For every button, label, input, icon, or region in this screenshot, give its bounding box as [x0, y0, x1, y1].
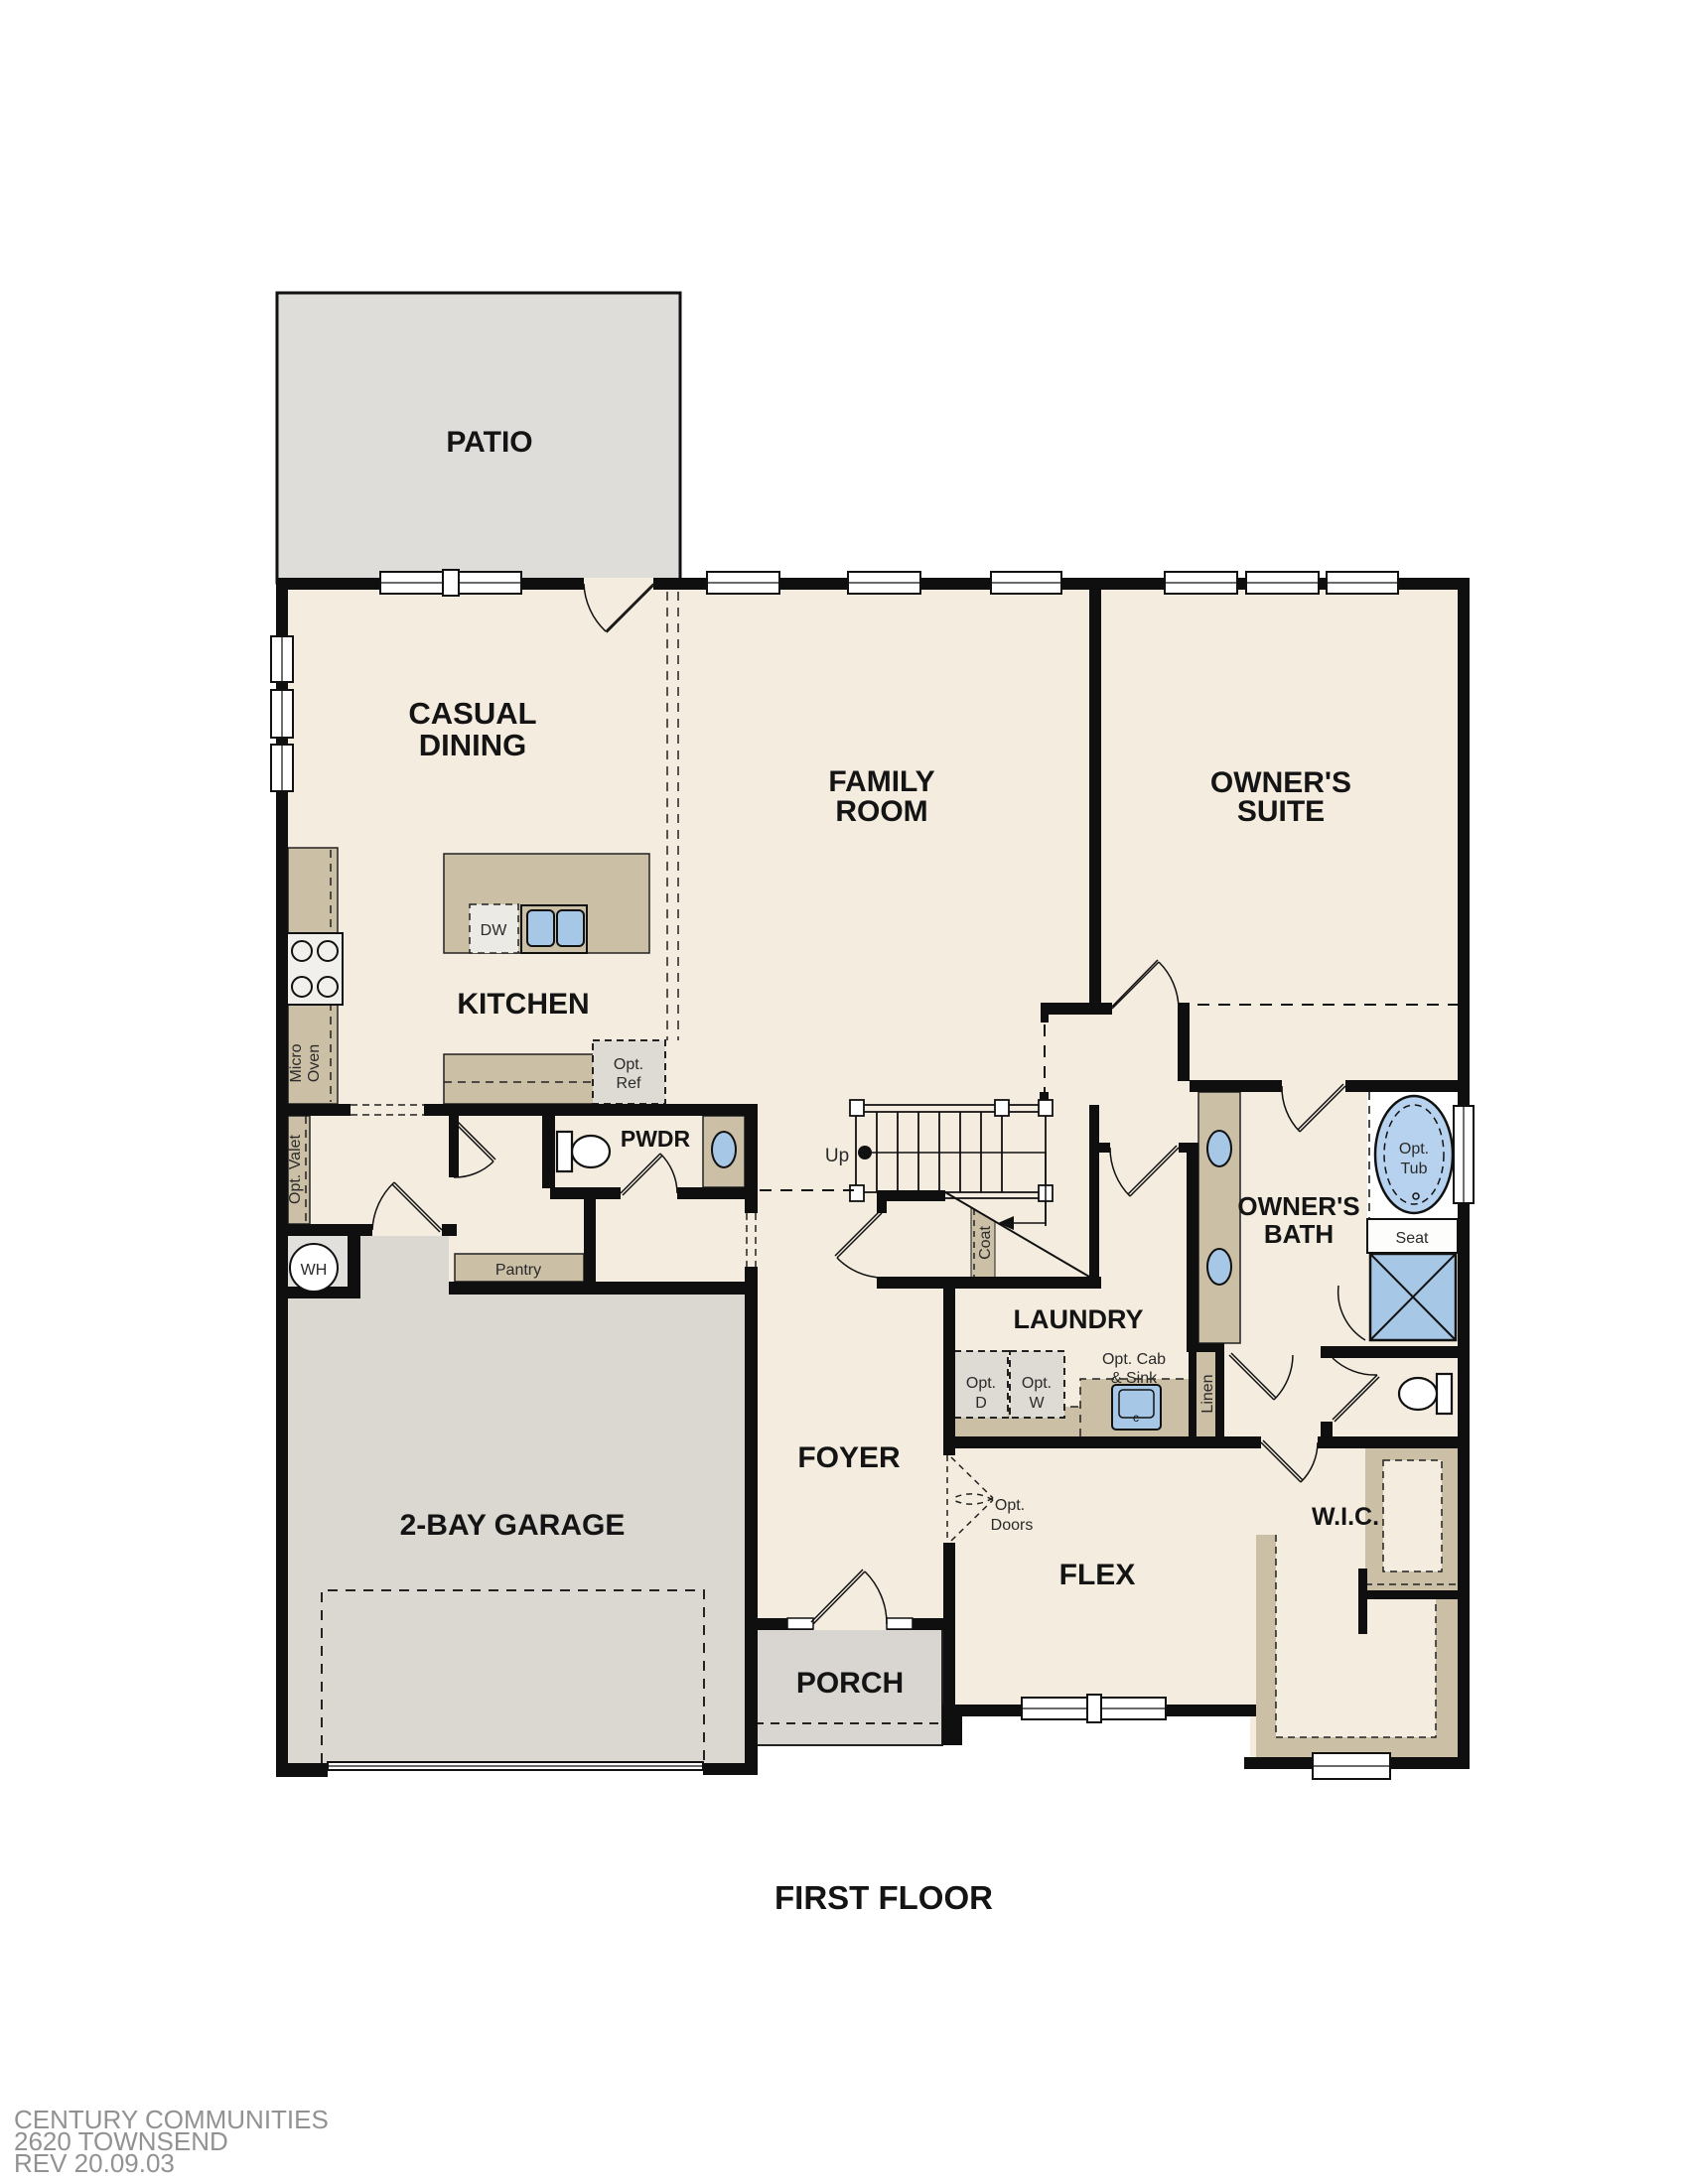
svg-text:ROOM: ROOM — [835, 795, 927, 828]
svg-text:FOYER: FOYER — [797, 1441, 901, 1474]
svg-text:CASUAL: CASUAL — [408, 696, 536, 731]
svg-text:W: W — [1029, 1395, 1045, 1412]
svg-text:Opt. Cab: Opt. Cab — [1102, 1351, 1166, 1368]
svg-text:Doors: Doors — [991, 1517, 1034, 1534]
svg-text:DINING: DINING — [419, 728, 527, 762]
svg-text:PORCH: PORCH — [796, 1667, 904, 1700]
svg-text:REV 20.09.03: REV 20.09.03 — [14, 2148, 175, 2178]
svg-text:Tub: Tub — [1401, 1160, 1428, 1177]
svg-text:Opt.: Opt. — [1399, 1141, 1429, 1158]
svg-text:FLEX: FLEX — [1059, 1559, 1136, 1591]
svg-text:Oven: Oven — [306, 1044, 323, 1082]
svg-text:Opt.: Opt. — [1022, 1375, 1052, 1392]
svg-text:Opt.: Opt. — [995, 1497, 1025, 1514]
svg-text:Up: Up — [825, 1146, 849, 1166]
svg-text:WH: WH — [301, 1262, 328, 1279]
svg-text:Ref: Ref — [617, 1075, 641, 1092]
svg-text:Seat: Seat — [1396, 1230, 1429, 1247]
svg-text:SUITE: SUITE — [1237, 795, 1325, 828]
svg-text:FAMILY: FAMILY — [828, 765, 934, 798]
svg-text:PWDR: PWDR — [621, 1126, 691, 1152]
svg-text:BATH: BATH — [1264, 1219, 1334, 1249]
svg-text:PATIO: PATIO — [446, 426, 532, 459]
svg-text:OWNER'S: OWNER'S — [1237, 1191, 1359, 1221]
svg-text:KITCHEN: KITCHEN — [457, 988, 589, 1021]
svg-text:Coat: Coat — [977, 1226, 994, 1260]
svg-text:Opt.: Opt. — [966, 1375, 996, 1392]
svg-text:FIRST FLOOR: FIRST FLOOR — [774, 1879, 993, 1916]
svg-text:c: c — [1133, 1411, 1139, 1425]
svg-text:Pantry: Pantry — [495, 1262, 541, 1279]
svg-text:Linen: Linen — [1199, 1374, 1216, 1413]
svg-text:& Sink: & Sink — [1111, 1370, 1158, 1387]
svg-text:2-BAY GARAGE: 2-BAY GARAGE — [400, 1509, 626, 1542]
svg-text:DW: DW — [481, 922, 508, 939]
svg-text:Micro: Micro — [288, 1043, 305, 1082]
svg-text:W.I.C.: W.I.C. — [1312, 1503, 1379, 1531]
svg-text:D: D — [975, 1395, 987, 1412]
svg-text:Opt.: Opt. — [614, 1056, 643, 1073]
svg-text:LAUNDRY: LAUNDRY — [1014, 1304, 1144, 1334]
svg-text:Opt. Valet: Opt. Valet — [287, 1134, 304, 1204]
